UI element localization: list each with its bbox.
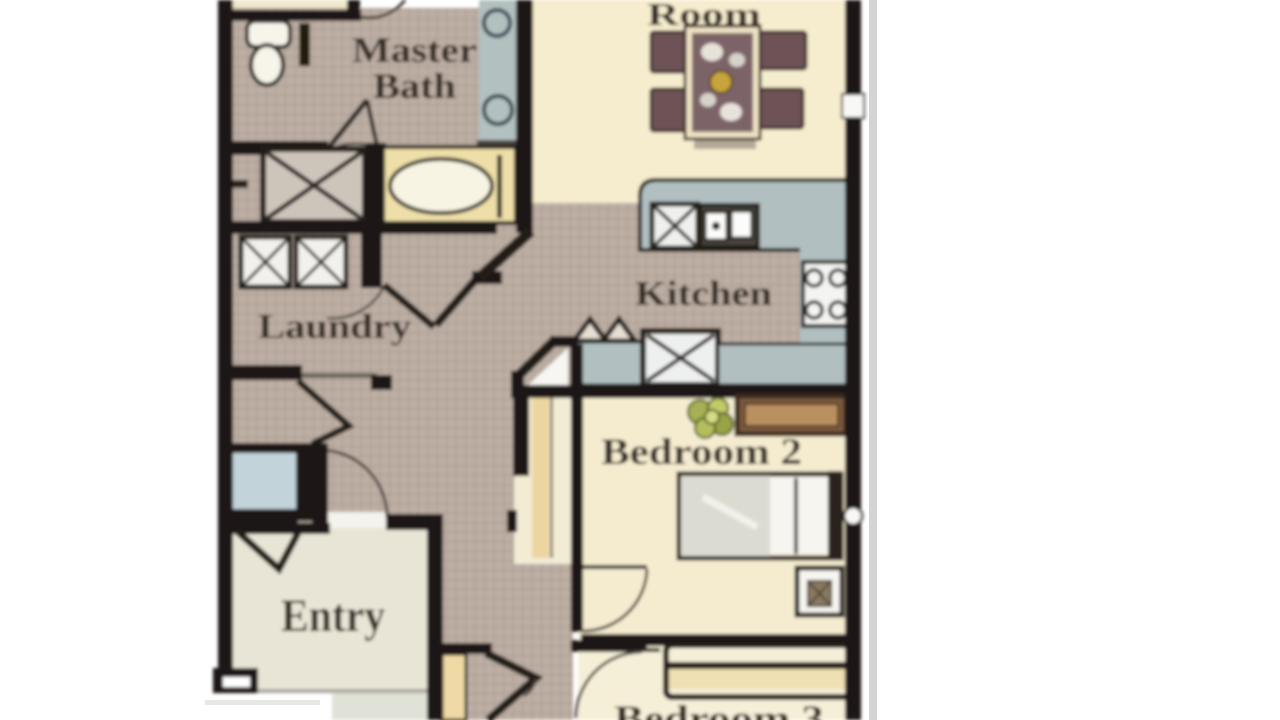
svg-text:Laundry: Laundry bbox=[258, 307, 412, 346]
svg-text:Room: Room bbox=[647, 0, 761, 32]
svg-text:Bedroom 2: Bedroom 2 bbox=[601, 432, 802, 473]
svg-text:Master: Master bbox=[352, 30, 477, 70]
svg-text:Bath: Bath bbox=[373, 66, 456, 106]
svg-text:Bedroom 3: Bedroom 3 bbox=[614, 699, 824, 720]
svg-text:Entry: Entry bbox=[281, 590, 385, 642]
svg-text:Kitchen: Kitchen bbox=[635, 274, 772, 313]
